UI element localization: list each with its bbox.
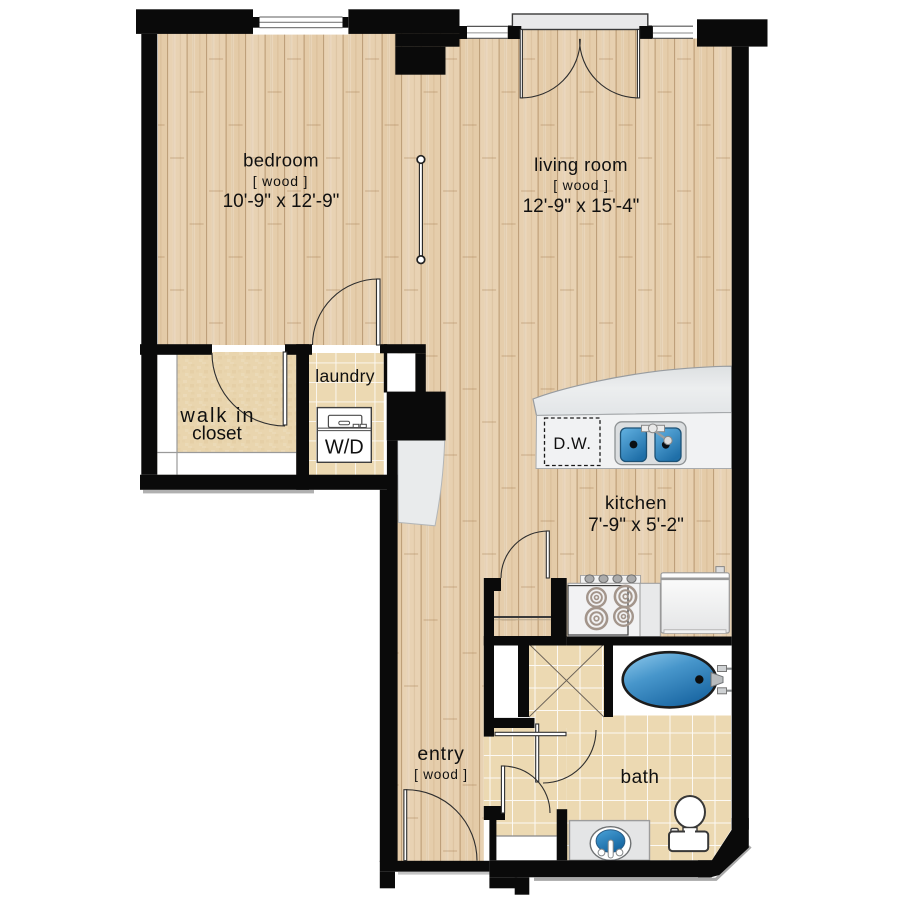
svg-text:7'-9" x 5'-2": 7'-9" x 5'-2" — [588, 515, 684, 536]
svg-text:laundry: laundry — [315, 366, 375, 386]
svg-text:[ wood ]: [ wood ] — [553, 177, 608, 193]
svg-text:12'-9" x 15'-4": 12'-9" x 15'-4" — [523, 196, 640, 217]
svg-text:kitchen: kitchen — [605, 492, 667, 513]
svg-text:D.W.: D.W. — [553, 435, 591, 453]
svg-text:entry: entry — [417, 743, 464, 765]
svg-text:[ wood ]: [ wood ] — [414, 767, 468, 782]
svg-text:[ wood ]: [ wood ] — [253, 173, 308, 189]
svg-text:living room: living room — [534, 154, 628, 175]
svg-text:closet: closet — [192, 424, 242, 445]
svg-text:W/D: W/D — [325, 437, 364, 459]
svg-text:10'-9" x 12'-9": 10'-9" x 12'-9" — [223, 191, 340, 212]
svg-text:bath: bath — [621, 767, 660, 788]
svg-text:bedroom: bedroom — [243, 150, 319, 171]
